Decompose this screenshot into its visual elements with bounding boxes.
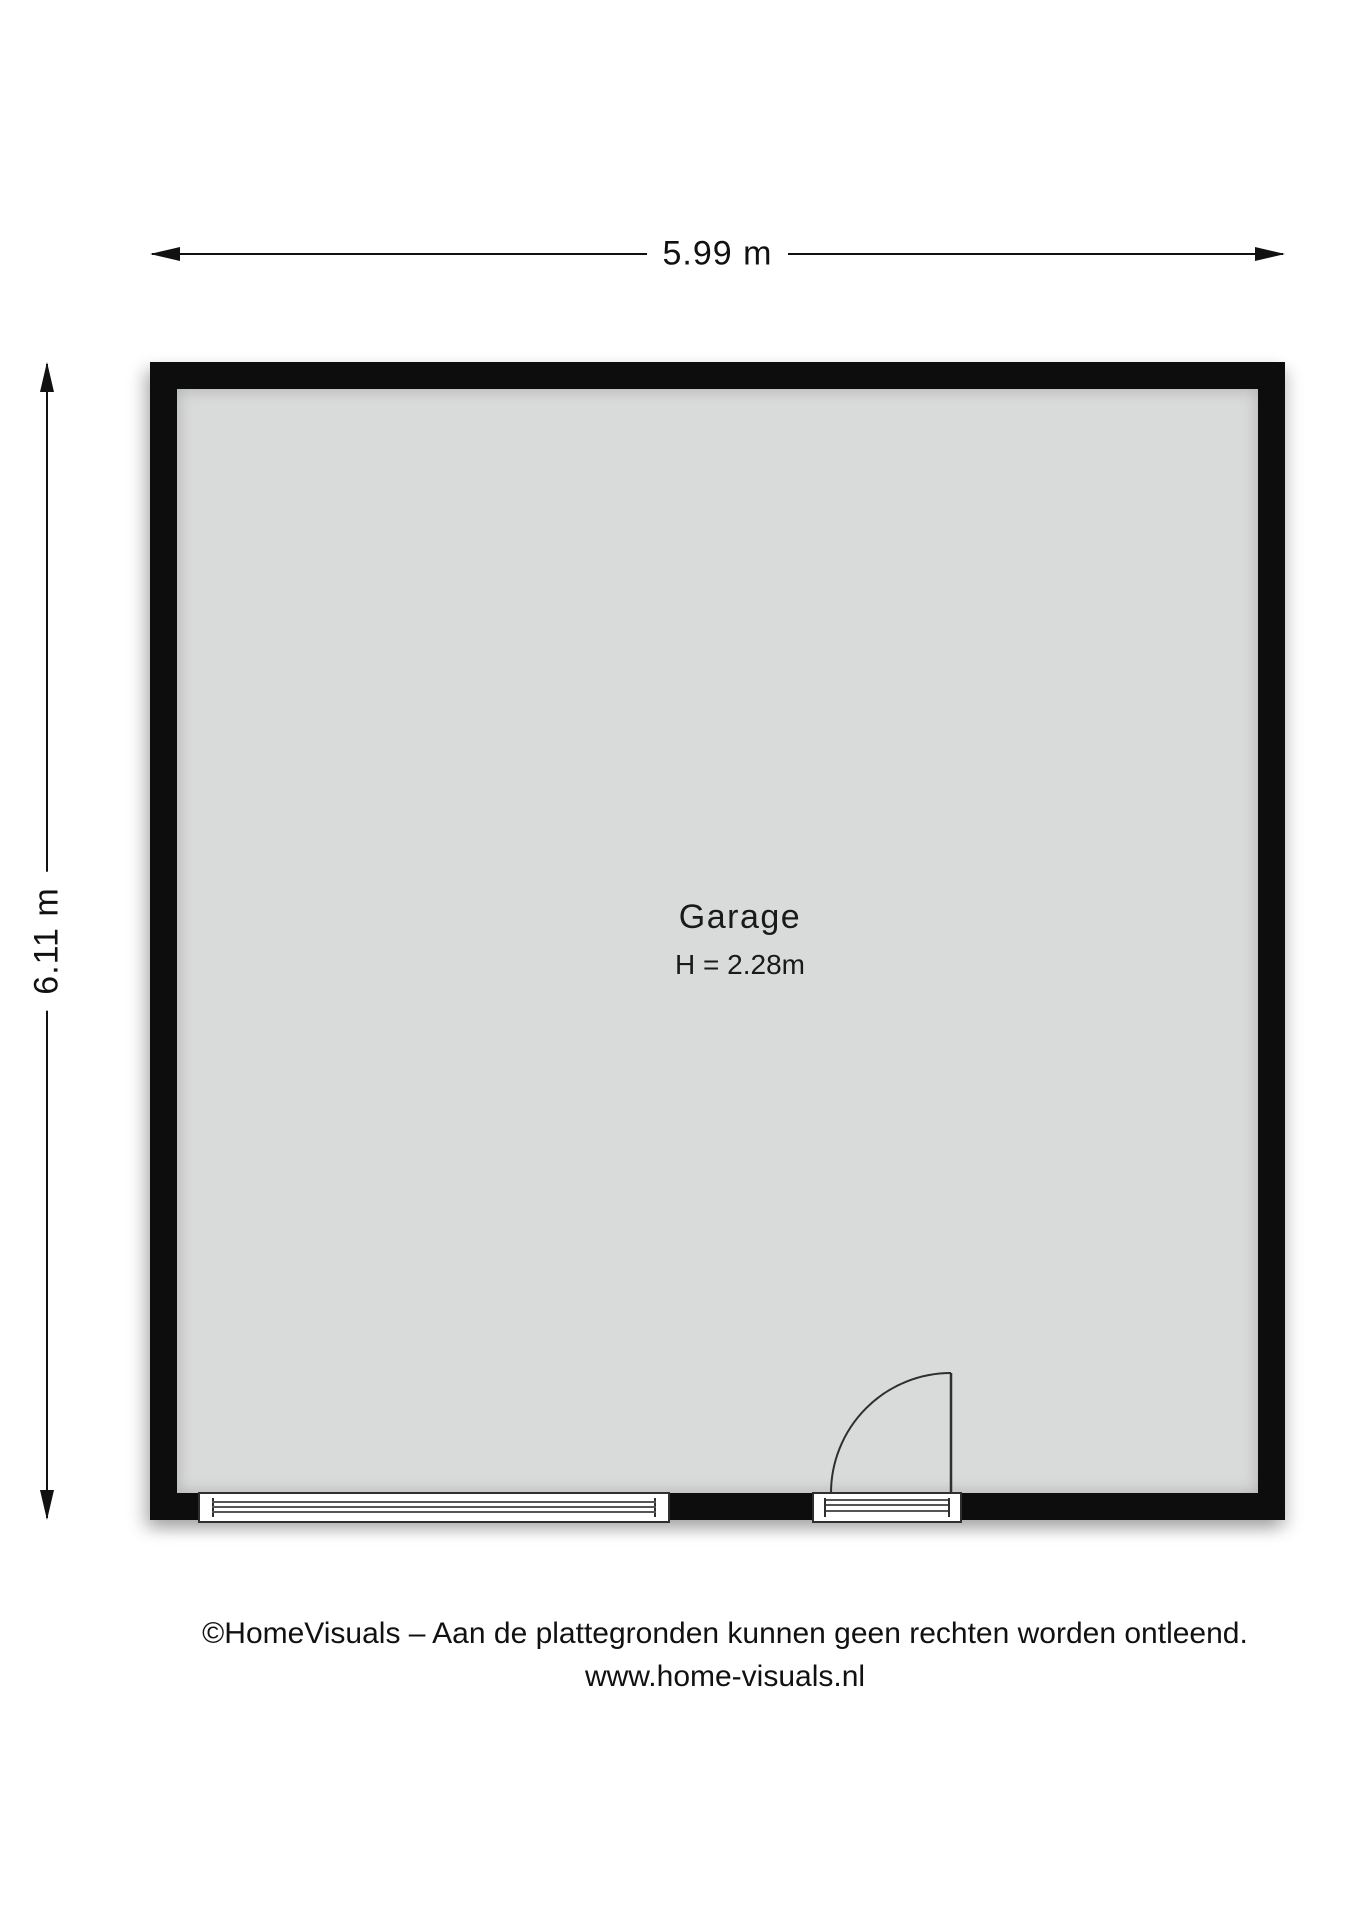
footer-disclaimer: ©HomeVisuals – Aan de plattegronden kunn…	[92, 1612, 1358, 1655]
window-pane-line	[212, 1511, 656, 1513]
room-name: Garage	[675, 898, 805, 937]
arrowhead-left-icon	[150, 247, 180, 261]
floorplan-page: 5.99 m 6.11 m Garage H = 2.28m	[0, 0, 1358, 1920]
arrowhead-up-icon	[40, 362, 54, 392]
dimension-height: 6.11 m	[33, 362, 61, 1520]
door-post-right	[948, 1498, 950, 1517]
dimension-width: 5.99 m	[150, 240, 1285, 268]
room-ceiling-height: H = 2.28m	[675, 949, 805, 981]
garage-room: Garage H = 2.28m	[150, 362, 1285, 1520]
door-sill-line	[826, 1510, 948, 1512]
room-label: Garage H = 2.28m	[675, 898, 805, 981]
arrowhead-down-icon	[40, 1490, 54, 1520]
door-sill-line	[826, 1504, 948, 1506]
dimension-width-label: 5.99 m	[647, 235, 789, 274]
door-sill-symbol	[812, 1492, 962, 1523]
footer: ©HomeVisuals – Aan de plattegronden kunn…	[92, 1612, 1358, 1698]
dimension-height-label: 6.11 m	[28, 871, 67, 1010]
window-pane-line	[212, 1501, 656, 1503]
door-sill-line	[826, 1499, 948, 1501]
footer-website: www.home-visuals.nl	[92, 1655, 1358, 1698]
arrowhead-right-icon	[1255, 247, 1285, 261]
window-symbol	[198, 1492, 670, 1523]
window-pane-line	[212, 1506, 656, 1508]
